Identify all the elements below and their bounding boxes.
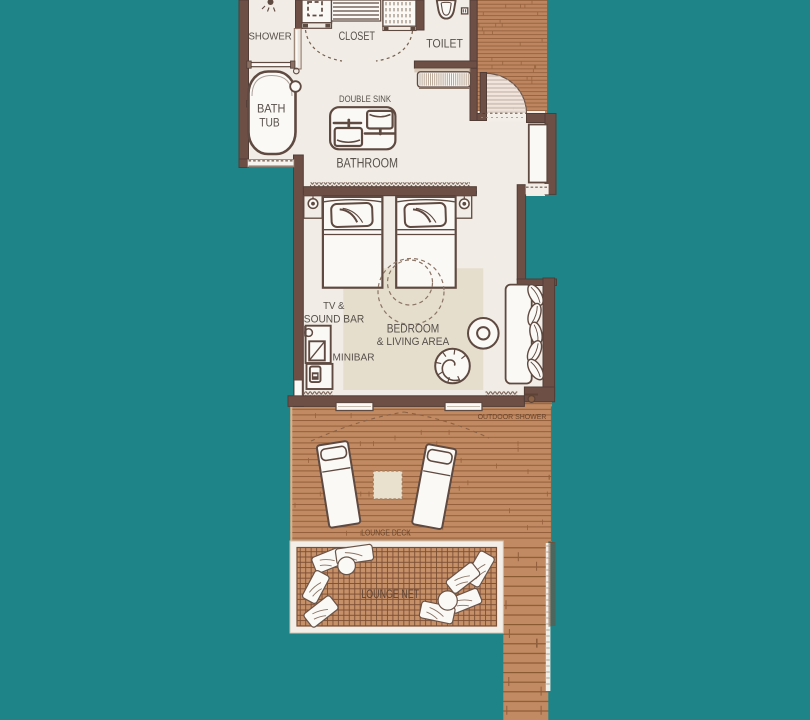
svg-text:SHOWER: SHOWER — [249, 32, 292, 43]
svg-text:BATHROOM: BATHROOM — [336, 155, 398, 170]
svg-text:& LIVING AREA: & LIVING AREA — [377, 336, 450, 348]
svg-text:LOUNGE NET: LOUNGE NET — [361, 589, 419, 601]
svg-text:DOUBLE SINK: DOUBLE SINK — [339, 94, 392, 105]
svg-text:TV &: TV & — [323, 301, 344, 312]
svg-text:TOILET: TOILET — [426, 39, 463, 51]
svg-text:BEDROOM: BEDROOM — [387, 324, 440, 336]
svg-text:TUB: TUB — [259, 118, 280, 130]
svg-text:CLOSET: CLOSET — [339, 31, 375, 43]
svg-text:MINIBAR: MINIBAR — [333, 353, 375, 364]
svg-text:LOUNGE DECK: LOUNGE DECK — [361, 528, 411, 537]
svg-text:SOUND BAR: SOUND BAR — [304, 313, 364, 325]
svg-text:OUTDOOR SHOWER: OUTDOOR SHOWER — [478, 412, 547, 421]
svg-text:BATH: BATH — [257, 104, 286, 116]
